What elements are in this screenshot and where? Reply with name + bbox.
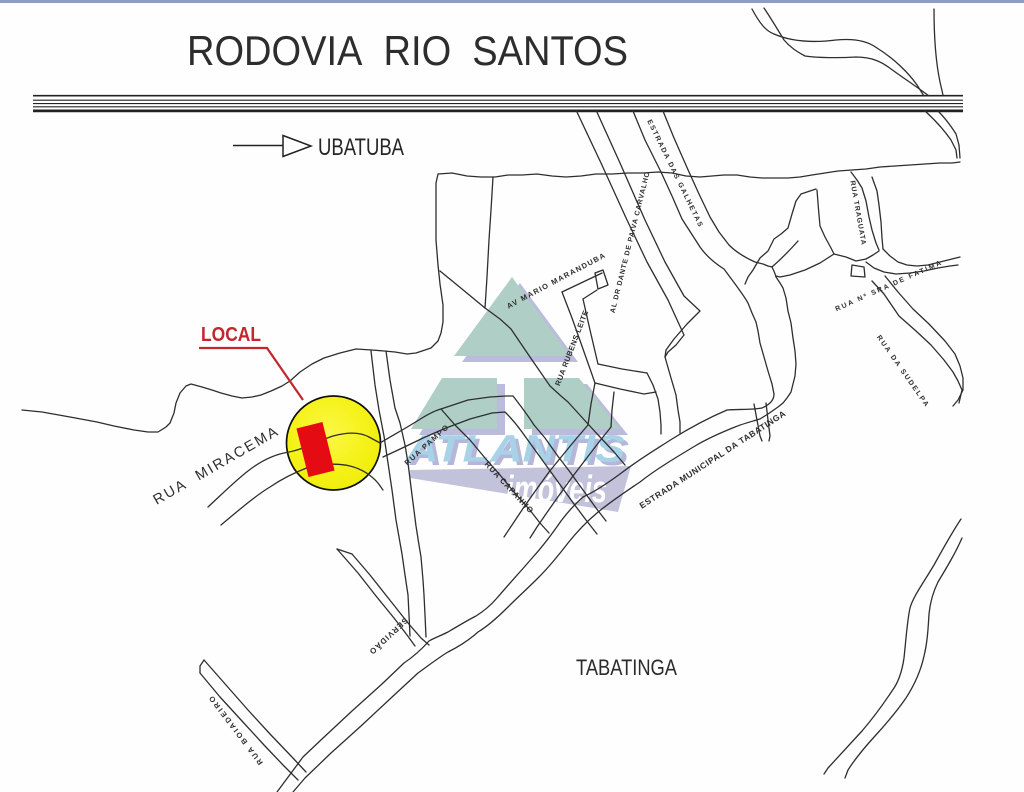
svg-text:UBATUBA: UBATUBA [318,134,404,161]
svg-text:TABATINGA: TABATINGA [576,655,677,680]
svg-text:RODOVIA RIO SANTOS: RODOVIA RIO SANTOS [187,27,628,74]
svg-text:LOCAL: LOCAL [201,324,261,346]
